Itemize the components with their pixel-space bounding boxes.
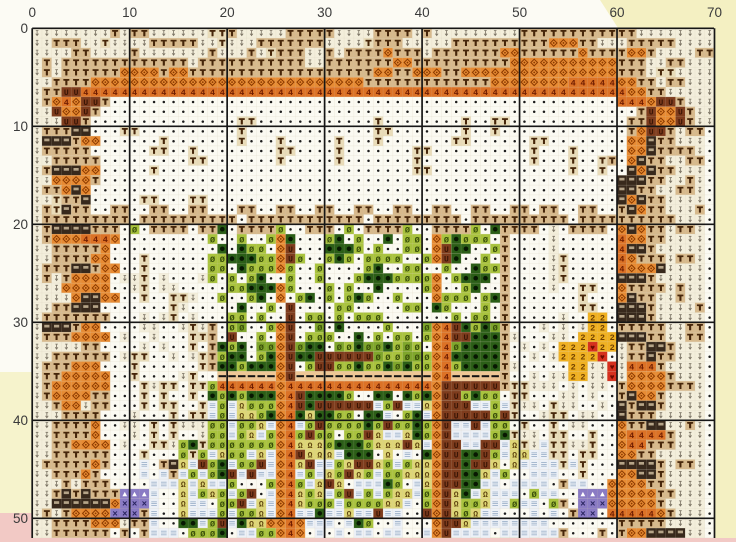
svg-text:50: 50	[13, 511, 28, 526]
svg-text:40: 40	[415, 5, 430, 20]
svg-text:10: 10	[13, 119, 28, 134]
svg-text:10: 10	[122, 5, 137, 20]
svg-text:40: 40	[13, 413, 28, 428]
svg-text:50: 50	[512, 5, 527, 20]
svg-text:0: 0	[20, 21, 28, 36]
svg-text:70: 70	[707, 5, 722, 20]
svg-text:30: 30	[317, 5, 332, 20]
svg-text:20: 20	[13, 217, 28, 232]
svg-text:0: 0	[28, 5, 36, 20]
svg-text:20: 20	[220, 5, 235, 20]
svg-text:60: 60	[609, 5, 624, 20]
svg-text:30: 30	[13, 315, 28, 330]
